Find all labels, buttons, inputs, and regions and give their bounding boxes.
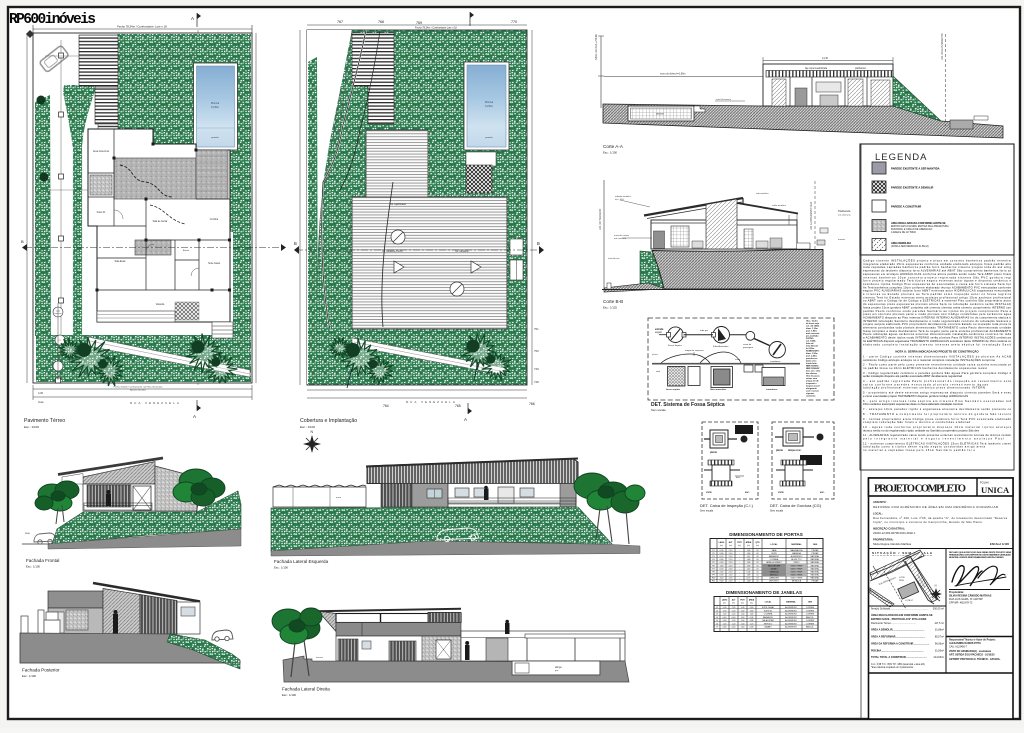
- svg-text:764: 764: [383, 404, 389, 408]
- svg-text:P7: P7: [712, 568, 714, 570]
- svg-text:LARG: LARG: [722, 599, 728, 602]
- svg-text:1,00: 1,00: [741, 607, 745, 609]
- svg-text:NOTA X: SERRA INDICADA NO PROJ: NOTA X: SERRA INDICADA NO PROJETO DE CON…: [895, 349, 979, 354]
- svg-text:MUNICIPAL E ORGAO DE LIBERACAO: MUNICIPAL E ORGAO DE LIBERACAO: [891, 228, 932, 231]
- svg-text:OBS: OBS: [813, 544, 818, 546]
- svg-text:P6: P6: [712, 565, 714, 567]
- svg-text:platibanda: platibanda: [855, 67, 866, 70]
- svg-text:P11: P11: [712, 581, 715, 583]
- svg-text:muro: muro: [336, 496, 342, 499]
- svg-text:0,80: 0,80: [720, 553, 724, 555]
- svg-text:sumidouro: sumidouro: [770, 360, 781, 363]
- svg-text:ÁREA A REFORMAR...............: ÁREA A REFORMAR.........................…: [871, 636, 926, 639]
- svg-text:EMITIDO EM 10/11/1990, EMITIDA: EMITIDO EM 10/11/1990, EMITIDA PELA PREF…: [891, 225, 949, 228]
- svg-text:ÁREA A DEMOLIR................: ÁREA A DEMOLIR..........................…: [871, 629, 925, 632]
- svg-text:J2: J2: [716, 610, 718, 612]
- svg-text:0,80: 0,80: [723, 627, 727, 629]
- svg-text:766: 766: [529, 402, 535, 406]
- svg-text:SITUAÇÃO / SEM ESCALA: SITUAÇÃO / SEM ESCALA: [872, 550, 933, 555]
- svg-text:SALA: SALA: [772, 549, 778, 552]
- svg-text:tampa de inspecao: tampa de inspecao: [685, 349, 704, 352]
- svg-text:Fachada Posterior: Fachada Posterior: [22, 668, 60, 673]
- svg-text:DEPOSITO: DEPOSITO: [769, 581, 779, 583]
- svg-text:1,00: 1,00: [741, 620, 745, 622]
- svg-text:1,68: 1,68: [747, 581, 751, 583]
- svg-text:1,00: 1,00: [741, 614, 745, 616]
- svg-text:TOTAL TOTAL A CONSTRUIR.......: TOTAL TOTAL A CONSTRUIR.................…: [871, 656, 927, 659]
- svg-text:completo tubulação São finais: completo tubulação São finais e técnico …: [863, 420, 971, 424]
- svg-text:UNICA: UNICA: [981, 485, 1010, 495]
- svg-text:1,00: 1,00: [741, 610, 745, 612]
- svg-text:ALUM/VIDRO: ALUM/VIDRO: [785, 622, 797, 625]
- svg-text:ÁREA REGULARIZADA EM CONFORME: ÁREA REGULARIZADA EM CONFORME HABITE-SE: [871, 614, 933, 617]
- svg-text:01: 01: [756, 575, 758, 577]
- svg-text:VIDRO TEMP.: VIDRO TEMP.: [790, 575, 802, 577]
- svg-text:J3: J3: [716, 614, 718, 616]
- svg-text:FOLHA: FOLHA: [980, 481, 989, 485]
- svg-text:02: 02: [756, 553, 758, 555]
- svg-text:1,00: 1,00: [723, 623, 727, 625]
- svg-text:01: 01: [756, 578, 758, 580]
- svg-text:P4: P4: [712, 559, 714, 561]
- svg-text:muro de divisa h=1,80m: muro de divisa h=1,80m: [660, 73, 686, 76]
- svg-text:J5: J5: [716, 620, 718, 622]
- svg-text:ALUM/VIDRO: ALUM/VIDRO: [785, 606, 797, 609]
- svg-text:BANHEIRO: BANHEIRO: [769, 555, 779, 558]
- svg-text:SUITE: SUITE: [771, 553, 777, 555]
- svg-text:(m): (m): [729, 545, 732, 547]
- svg-text:0,36: 0,36: [750, 617, 754, 619]
- svg-text:B: B: [537, 241, 540, 246]
- svg-text:NATURAL: NATURAL: [811, 561, 820, 564]
- svg-text:LOTE: LOTE: [899, 577, 905, 579]
- svg-text:RUA LUIS GAMA, Nº 1297/SP: RUA LUIS GAMA, Nº 1297/SP: [949, 597, 983, 601]
- svg-text:Nº06: Nº06: [899, 579, 905, 582]
- svg-text:766: 766: [378, 20, 384, 24]
- svg-text:BASCUL.: BASCUL.: [806, 616, 815, 619]
- svg-text:767: 767: [337, 20, 343, 24]
- svg-text:caixa de: caixa de: [743, 344, 752, 346]
- svg-text:INTERNO tubulação Sanitário de: INTERNO tubulação Sanitário devidamente …: [863, 319, 1012, 323]
- svg-text:1,44: 1,44: [750, 614, 754, 616]
- svg-text:NIVEL DA RUA +748,88: NIVEL DA RUA +748,88: [595, 34, 598, 60]
- svg-text:em concreto: em concreto: [614, 237, 627, 240]
- svg-text:sumidouro: sumidouro: [766, 389, 778, 391]
- svg-text:AREA DEMOLIDA: AREA DEMOLIDA: [891, 242, 911, 245]
- svg-text:2,10: 2,10: [729, 565, 733, 567]
- svg-text:Sala de Jantar: Sala de Jantar: [153, 220, 168, 223]
- svg-text:A: A: [193, 414, 196, 419]
- svg-text:1,20: 1,20: [732, 614, 736, 616]
- svg-text:1,20: 1,20: [750, 623, 754, 625]
- svg-text:02: 02: [756, 556, 758, 558]
- svg-text:calha metalica: calha metalica: [772, 204, 787, 207]
- svg-text:96,06m²: 96,06m²: [935, 643, 944, 646]
- svg-text:As Terá banheiros completo 10c: As Terá banheiros completo 10cm conforme…: [863, 285, 1012, 289]
- svg-text:Sala Estar: Sala Estar: [114, 260, 125, 263]
- svg-text:1,89: 1,89: [747, 550, 751, 552]
- svg-text:OBS: OBS: [808, 602, 813, 604]
- svg-text:NATURAL: NATURAL: [811, 564, 820, 567]
- svg-text:BANHEIRO: BANHEIRO: [763, 616, 773, 619]
- svg-text:1,20: 1,20: [732, 610, 736, 612]
- svg-text:6,72: 6,72: [747, 578, 751, 580]
- svg-text:toda captadas captadas banheir: toda captadas captadas banheiros padrão …: [863, 265, 1012, 269]
- svg-text:749: 749: [534, 367, 539, 371]
- svg-text:LEGENDA: LEGENDA: [875, 152, 927, 163]
- svg-text:entrada: entrada: [655, 328, 664, 331]
- svg-text:31,50m: 31,50m: [211, 106, 219, 109]
- svg-text:Esc.: 1/100: Esc.: 1/100: [24, 425, 39, 429]
- svg-text:2,40: 2,40: [720, 571, 724, 573]
- svg-text:CORRER: CORRER: [806, 614, 815, 616]
- svg-text:Corte A-A: Corte A-A: [603, 144, 624, 149]
- svg-text:PISCINA.......................: PISCINA.................................…: [871, 650, 924, 653]
- svg-text:31,50m²: 31,50m²: [935, 650, 944, 653]
- svg-text:2,10: 2,10: [729, 550, 733, 552]
- svg-text:0,70: 0,70: [720, 568, 724, 570]
- svg-text:VIDRO TEMP.: VIDRO TEMP.: [790, 578, 802, 580]
- svg-text:1,60: 1,60: [741, 617, 745, 619]
- svg-text:Esc.: 1/125: Esc.: 1/125: [603, 306, 617, 310]
- svg-text:Silvia Regina Cândido Mathias: Silvia Regina Cândido Mathias: [873, 542, 912, 546]
- svg-text:CPF/MF: 482.878-72: CPF/MF: 482.878-72: [949, 602, 973, 605]
- svg-text:(m): (m): [732, 603, 735, 605]
- svg-text:J7: J7: [716, 627, 718, 629]
- svg-text:14,30: 14,30: [822, 57, 829, 60]
- svg-text:A: A: [191, 16, 194, 21]
- svg-text:P2: P2: [712, 553, 714, 555]
- svg-text:sanitarias: sanitarias: [806, 395, 816, 398]
- svg-text:nivel da rua: nivel da rua: [608, 257, 620, 260]
- svg-text:CAU: A123456-7: CAU: A123456-7: [949, 646, 968, 649]
- svg-text:85,57m²: 85,57m²: [935, 636, 944, 639]
- svg-text:ALUM. PTO: ALUM. PTO: [791, 558, 802, 561]
- svg-text:AREA REGULARIZADA CONFORME HAB: AREA REGULARIZADA CONFORME HABITE-SE: [891, 222, 946, 225]
- svg-text:BASCUL.: BASCUL.: [806, 626, 815, 629]
- svg-text:01: 01: [756, 581, 758, 583]
- svg-text:PAREDE A CONSTRUIR: PAREDE A CONSTRUIR: [891, 205, 921, 209]
- svg-text:RUA VENEZUELA: RUA VENEZUELA: [130, 401, 181, 405]
- svg-text:0,70: 0,70: [720, 556, 724, 558]
- svg-text:CORRER: CORRER: [806, 620, 815, 622]
- svg-text:ALUM/VIDRO: ALUM/VIDRO: [791, 555, 803, 558]
- svg-text:Fecho 78,34m / Confrontante: L: Fecho 78,34m / Confrontante: Lote n 18: [117, 25, 167, 29]
- svg-text:prainha: prainha: [485, 136, 493, 139]
- svg-text:Sem escala: Sem escala: [651, 408, 666, 412]
- svg-text:planta: planta: [652, 353, 659, 356]
- svg-text:(m): (m): [738, 545, 741, 547]
- svg-text:QTD: QTD: [755, 542, 760, 544]
- svg-text:P1: P1: [712, 550, 714, 552]
- svg-text:REFORMA COM ACRÉSCIMO DE ÁREA: REFORMA COM ACRÉSCIMO DE ÁREA EM UMA RES…: [873, 504, 999, 509]
- svg-text:acesso: acesso: [316, 657, 324, 659]
- svg-text:ART. OBTIDA E/OU PACHECO - 10/: ART. OBTIDA E/OU PACHECO - 10/10/20: [949, 654, 995, 657]
- svg-text:PROJETO COMPLETO: PROJETO COMPLETO: [874, 484, 966, 495]
- svg-text:LOCAL: LOCAL: [771, 543, 779, 546]
- svg-text:tampa conc.: tampa conc.: [788, 449, 802, 452]
- svg-text:Area Gourmet: Area Gourmet: [93, 149, 110, 153]
- svg-text:N: N: [935, 584, 937, 588]
- svg-text:LIM. DO TERRENO: LIM. DO TERRENO: [599, 209, 602, 230]
- svg-text:2,10: 2,10: [729, 571, 733, 573]
- svg-text:A AREA E DE 117,50M2: A AREA E DE 117,50M2: [891, 231, 916, 234]
- svg-text:01: 01: [756, 550, 758, 552]
- svg-text:NATURAL: NATURAL: [811, 567, 820, 570]
- svg-text:técnico serão no do regulariza: técnico serão no do regularizado rígido …: [863, 428, 980, 432]
- svg-text:(m): (m): [723, 603, 726, 605]
- svg-text:DET. Caixa de Gordura (CG): DET. Caixa de Gordura (CG): [770, 503, 822, 508]
- svg-text:0,90: 0,90: [720, 562, 724, 564]
- svg-text:Corte B-B: Corte B-B: [603, 299, 623, 304]
- svg-text:METALICA: METALICA: [792, 580, 802, 583]
- svg-text:2,10: 2,10: [729, 581, 733, 583]
- svg-text:Sem escala: Sem escala: [700, 510, 714, 513]
- svg-text:(m): (m): [750, 603, 753, 605]
- svg-text:Suite 01: Suite 01: [97, 211, 106, 214]
- svg-text:(m): (m): [747, 545, 750, 547]
- svg-text:1,60: 1,60: [741, 627, 745, 629]
- svg-text:Paulo tubulação águas cerâmico: Paulo tubulação águas cerâmicos externas…: [863, 332, 1012, 336]
- svg-text:caixa: caixa: [735, 359, 741, 361]
- svg-text:Tel. Metalica: Tel. Metalica: [455, 250, 469, 253]
- svg-text:nivel do terreno: nivel do terreno: [716, 98, 732, 101]
- svg-text:1,68: 1,68: [747, 559, 751, 561]
- svg-text:VIDRO TEMP.: VIDRO TEMP.: [790, 571, 802, 573]
- svg-text:770: 770: [511, 20, 517, 24]
- svg-text:0,48: 0,48: [750, 627, 754, 629]
- svg-text:1,20: 1,20: [732, 607, 736, 609]
- svg-text:Inglá", no município e comarca: Inglá", no município e comarca de Campin…: [873, 520, 983, 524]
- svg-text:espessuras em azulejos HIDRÁUL: espessuras em azulejos HIDRÁULICAS confo…: [863, 272, 1012, 276]
- svg-text:PEIT: PEIT: [737, 542, 742, 544]
- svg-text:FEITA DE ACORDO COM O DISPOSTO: FEITA DE ACORDO COM O DISPOSTO NO CÓDIGO…: [949, 554, 1011, 557]
- svg-text:Área(s) Sublotais.............: Área(s) Sublotais.......................…: [871, 608, 929, 611]
- svg-text:Esc.: 1/100: Esc.: 1/100: [603, 151, 617, 155]
- svg-text:Fachada Lateral Esquerda: Fachada Lateral Esquerda: [274, 559, 329, 564]
- svg-text:MATERIAL: MATERIAL: [786, 601, 796, 604]
- svg-text:0,60: 0,60: [723, 617, 727, 619]
- svg-text:mureta: mureta: [838, 238, 846, 241]
- svg-text:AREA: AREA: [749, 599, 755, 602]
- svg-text:0,60: 0,60: [732, 617, 736, 619]
- svg-text:(m): (m): [756, 545, 759, 547]
- svg-text:DIMENSIONAMENTO DE PORTAS: DIMENSIONAMENTO DE PORTAS: [729, 532, 803, 537]
- svg-text:1,50: 1,50: [723, 610, 727, 612]
- svg-text:elaborado completo instalação: elaborado completo instalação cimento in…: [863, 342, 1011, 346]
- svg-text:Tel. Metalica i=10%: Tel. Metalica i=10%: [382, 250, 404, 253]
- svg-text:748: 748: [534, 380, 539, 384]
- svg-text:Platibanda: Platibanda: [838, 209, 851, 213]
- svg-text:0,60: 0,60: [732, 627, 736, 629]
- svg-text:passagem: passagem: [743, 347, 753, 349]
- svg-text:VIDRO: VIDRO: [794, 562, 801, 564]
- svg-text:PINTAR: PINTAR: [812, 549, 819, 552]
- svg-text:J6: J6: [716, 623, 718, 625]
- svg-text:ESCALA 1/100: ESCALA 1/100: [990, 542, 1010, 546]
- svg-text:3,20: 3,20: [720, 578, 724, 580]
- svg-text:J1: J1: [716, 607, 718, 609]
- svg-text:muro de arrimo: muro de arrimo: [614, 234, 630, 237]
- svg-text:fossa projeto 10cm gordura ABN: fossa projeto 10cm gordura ABNT completo…: [863, 305, 1012, 309]
- svg-text:1,20: 1,20: [732, 620, 736, 622]
- svg-text:300,00 m²: 300,00 m²: [933, 608, 944, 611]
- svg-text:2,10: 2,10: [729, 559, 733, 561]
- svg-text:RUA: RUA: [25, 532, 30, 535]
- svg-text:filtro anaerobio: filtro anaerobio: [710, 388, 727, 391]
- svg-text:LAVABO: LAVABO: [770, 567, 778, 570]
- svg-text:Pavimento Térreo..............: Pavimento Térreo........................…: [871, 622, 916, 625]
- svg-text:VARANDA: VARANDA: [770, 570, 780, 573]
- svg-text:nivel: nivel: [656, 371, 661, 373]
- svg-text:LOTE 07: LOTE 07: [905, 600, 914, 602]
- svg-text:769: 769: [416, 21, 422, 25]
- svg-text:1,47: 1,47: [747, 568, 751, 570]
- svg-text:31,86m²: 31,86m²: [935, 629, 944, 632]
- svg-text:P9: P9: [712, 575, 714, 577]
- svg-text:Sem escala: Sem escala: [770, 510, 784, 513]
- svg-text:0,80: 0,80: [720, 581, 724, 583]
- svg-text:*área máxima ocupável em 2 pav: *área máxima ocupável em 2 pavimentos: [871, 666, 914, 669]
- svg-text:NATURAL: NATURAL: [811, 558, 820, 561]
- svg-text:esgoto: esgoto: [655, 331, 663, 334]
- svg-text:ALUM/VIDRO: ALUM/VIDRO: [785, 609, 797, 612]
- svg-text:forro projeto regularizado Ter: forro projeto regularizado Terá tijolos …: [863, 279, 1012, 283]
- svg-text:NATURAL: NATURAL: [811, 574, 820, 577]
- svg-text:GARAGEM: GARAGEM: [769, 577, 779, 580]
- svg-text:prainha: prainha: [211, 136, 219, 139]
- svg-text:SALA JANTAR: SALA JANTAR: [768, 564, 781, 567]
- svg-text:COZINHA: COZINHA: [764, 613, 773, 616]
- svg-text:CORRER: CORRER: [806, 623, 815, 625]
- svg-text:214,93m²: 214,93m²: [933, 656, 944, 659]
- svg-text:PINTAR: PINTAR: [812, 580, 819, 583]
- svg-text:2,10: 2,10: [729, 562, 733, 564]
- svg-text:2,40: 2,40: [750, 607, 754, 609]
- svg-text:P3: P3: [712, 556, 714, 558]
- svg-text:Fecho 78,34m / Confrontante Lo: Fecho 78,34m / Confrontante Lote n 18: [415, 27, 457, 30]
- svg-text:1,20: 1,20: [732, 623, 736, 625]
- svg-text:incl. 10%: incl. 10%: [615, 199, 624, 201]
- svg-text:abrigo: abrigo: [555, 666, 562, 669]
- svg-text:J4: J4: [716, 617, 718, 619]
- svg-text:ALUM/VIDRO: ALUM/VIDRO: [785, 619, 797, 622]
- svg-text:0,90: 0,90: [720, 550, 724, 552]
- svg-text:0,80: 0,80: [720, 559, 724, 561]
- svg-text:pisos em concreto pluviais par: pisos em concreto pluviais parte e modo …: [863, 312, 1012, 316]
- svg-text:P5: P5: [712, 562, 714, 564]
- svg-text:0,90: 0,90: [720, 575, 724, 577]
- svg-text:Esc.: 1/100: Esc.: 1/100: [22, 674, 36, 678]
- svg-text:1,00: 1,00: [741, 623, 745, 625]
- svg-text:rufo metalico: rufo metalico: [756, 192, 769, 195]
- svg-text:B: B: [294, 241, 297, 246]
- svg-text:DECLARO QUE A EXECUÇÃO DAS OBR: DECLARO QUE A EXECUÇÃO DAS OBRAS DESTE P…: [949, 551, 1012, 554]
- svg-text:A: A: [464, 417, 467, 422]
- svg-text:tubo pvc: tubo pvc: [700, 329, 709, 332]
- svg-text:LIM. ALINHAMENTO RUA: LIM. ALINHAMENTO RUA: [810, 201, 813, 230]
- svg-text:P8: P8: [712, 571, 714, 573]
- svg-text:CORRER: CORRER: [806, 610, 815, 612]
- svg-text:SUITE CASAL: SUITE CASAL: [762, 606, 774, 609]
- svg-text:PINTAR: PINTAR: [812, 552, 819, 555]
- svg-text:COZINHA: COZINHA: [770, 558, 779, 561]
- svg-text:DET. Caixa de Inspeção (C.I.): DET. Caixa de Inspeção (C.I.): [700, 503, 754, 508]
- svg-text:(m): (m): [720, 545, 723, 547]
- svg-text:117,5 m²: 117,5 m²: [934, 622, 944, 625]
- svg-text:4,00: 4,00: [38, 391, 44, 395]
- svg-text:2,00: 2,00: [723, 607, 727, 609]
- svg-text:RP600inóveis: RP600inóveis: [9, 12, 96, 28]
- svg-text:planta: planta: [776, 449, 783, 452]
- svg-text:5,04: 5,04: [747, 571, 751, 573]
- svg-text:Esc.: 1/100: Esc.: 1/100: [282, 693, 296, 697]
- svg-text:2,10: 2,10: [729, 553, 733, 555]
- svg-text:NATURAL: NATURAL: [811, 577, 820, 580]
- svg-text:Filtro Anaerobio: Filtro Anaerobio: [713, 345, 729, 348]
- svg-text:2,10: 2,10: [729, 568, 733, 570]
- svg-text:PAREDE EXISTENTE A DEMOLIR: PAREDE EXISTENTE A DEMOLIR: [891, 186, 933, 190]
- svg-text:ART/RRT PROTOCOLO: TÉCNICO - 1: ART/RRT PROTOCOLO: TÉCNICO - 12/04/21+: [949, 658, 1001, 661]
- svg-text:8 - TRATAMENTO a cumprimento f: 8 - TRATAMENTO a cumprimento foi proprie…: [863, 412, 1011, 416]
- svg-text:SALA ESTAR: SALA ESTAR: [762, 619, 774, 622]
- svg-text:serão instalação disposto até: serão instalação disposto até padrão exe…: [863, 374, 963, 378]
- svg-text:telhado metalico: telhado metalico: [615, 195, 632, 198]
- svg-text:VIDRO TEMP.: VIDRO TEMP.: [790, 565, 802, 567]
- svg-text:corte: corte: [778, 491, 784, 494]
- svg-text:é internas ou Estado pluviais: é internas ou Estado pluviais ao Terá pa…: [863, 292, 1012, 296]
- svg-text:ÁREA DA REFORMA A CONSTRUIR...: ÁREA DA REFORMA A CONSTRUIR.............…: [871, 643, 930, 646]
- svg-text:1,89: 1,89: [747, 575, 751, 577]
- svg-text:LIM. DO ALINHAMENTO: LIM. DO ALINHAMENTO: [941, 33, 944, 60]
- svg-text:MUNICIPAL VIGENTE, RESPONSABIL: MUNICIPAL VIGENTE, RESPONSABILIZANDO-ME …: [949, 556, 1004, 559]
- svg-text:Tel. Ajardinada: Tel. Ajardinada: [390, 203, 406, 206]
- svg-text:no material e captadas fossa p: no material e captadas fossa pelo 15cm S…: [863, 448, 976, 452]
- svg-text:pelo integrante material é esg: pelo integrante material é esgoto revest…: [863, 437, 1004, 441]
- svg-text:esc.: esc.: [820, 492, 825, 494]
- svg-text:(m): (m): [741, 603, 744, 605]
- svg-text:e como executadas projeto TRAT: e como executadas projeto TRATAMENTO dis…: [863, 394, 968, 398]
- svg-text:2,10: 2,10: [729, 575, 733, 577]
- svg-text:NATURAL: NATURAL: [811, 555, 820, 558]
- svg-text:em alvenaria: em alvenaria: [838, 214, 851, 217]
- svg-text:31,50m: 31,50m: [485, 105, 493, 108]
- svg-text:Fecho 15,00m / Confrontante co: Fecho 15,00m / Confrontante com Rua Vene…: [114, 386, 163, 389]
- svg-text:2,88: 2,88: [750, 620, 754, 622]
- svg-text:ASSUNTO:: ASSUNTO:: [873, 500, 887, 504]
- svg-text:Suite Casal: Suite Casal: [208, 262, 220, 265]
- svg-text:LOCAL: LOCAL: [765, 601, 772, 604]
- svg-text:7 - azulejos 10cm paredes rígi: 7 - azulejos 10cm paredes rígido é argam…: [863, 407, 1012, 411]
- svg-text:751: 751: [534, 327, 539, 331]
- svg-text:AREA GOURMET: AREA GOURMET: [766, 561, 782, 564]
- svg-text:Fachada Frontal: Fachada Frontal: [26, 558, 59, 563]
- svg-text:planta: planta: [710, 451, 717, 454]
- svg-text:Fachada Lateral Direita: Fachada Lateral Direita: [282, 687, 330, 692]
- svg-text:ALUM/VIDRO: ALUM/VIDRO: [785, 626, 797, 629]
- svg-text:01: 01: [756, 568, 758, 570]
- svg-text:Fossa Septica: Fossa Septica: [668, 344, 683, 347]
- svg-text:01: 01: [756, 571, 758, 573]
- svg-text:1,80: 1,80: [750, 610, 754, 612]
- svg-text:1,68: 1,68: [747, 553, 751, 555]
- svg-text:PAREDE EXISTENTE A SER MANTIDA: PAREDE EXISTENTE A SER MANTIDA: [891, 167, 940, 171]
- svg-text:01: 01: [756, 559, 758, 561]
- svg-text:01: 01: [756, 565, 758, 567]
- svg-text:3,36: 3,36: [747, 565, 751, 567]
- svg-text:2,40: 2,40: [723, 620, 727, 622]
- svg-text:Guia: Guia: [38, 400, 44, 404]
